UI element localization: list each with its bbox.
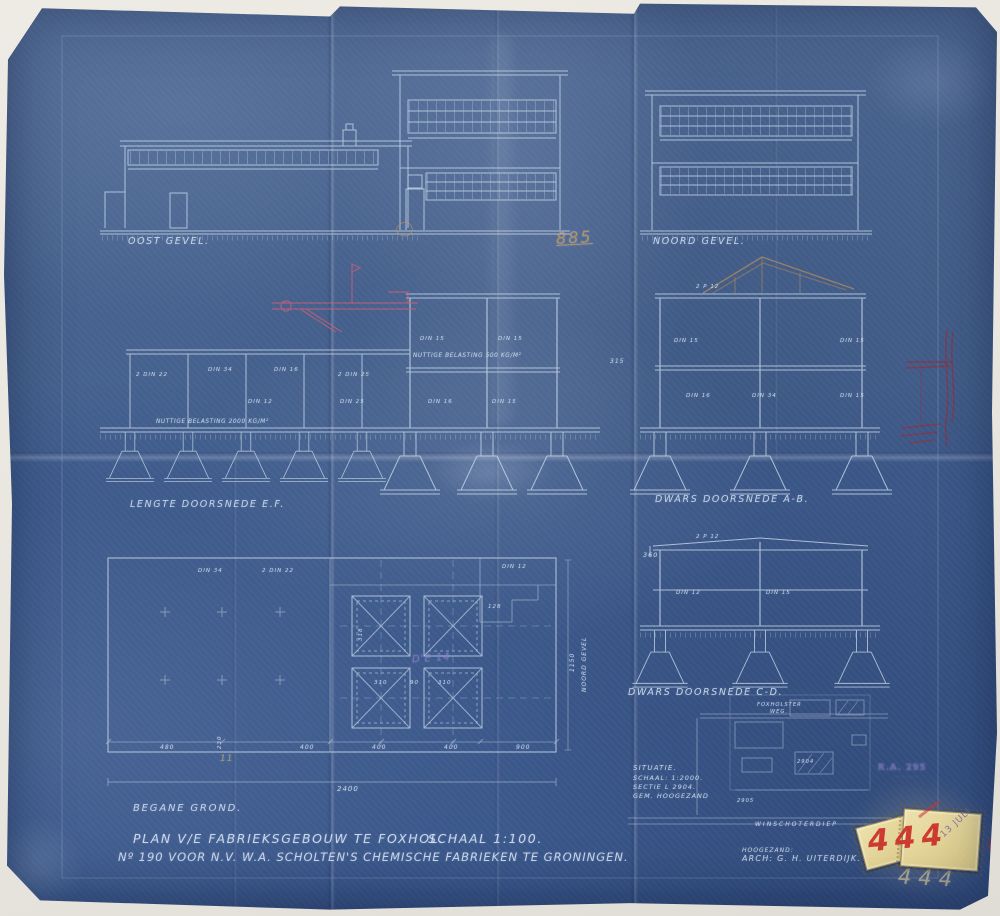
- lengte-doorsnede-drawing: [100, 294, 600, 494]
- dim-label: 400: [300, 744, 314, 751]
- middle-elevation-drawing: [392, 71, 568, 230]
- dim-label: 360: [643, 551, 658, 559]
- member-label: DIN 16: [686, 393, 711, 399]
- load-note-upper: NUTTIGE BELASTING 500 KG/M²: [413, 353, 521, 359]
- tan-handwritten-note: 11: [220, 754, 233, 764]
- plan-north-side-note: NOORD GEVEL: [581, 637, 588, 692]
- oost-gevel-label: OOST GEVEL.: [128, 236, 210, 247]
- archive-stamp-line1: R.A. 295: [878, 763, 927, 773]
- begane-grond-plan-drawing: [106, 558, 571, 786]
- dwars-ab-label: DWARS DOORSNEDE A-B.: [655, 494, 809, 505]
- noord-gevel-label: NOORD GEVEL.: [653, 236, 745, 247]
- dim-label: 128: [488, 604, 502, 610]
- blueprint-linework: [0, 0, 1000, 916]
- member-label: DIN 12: [248, 399, 273, 405]
- member-label: DIN 34: [208, 367, 233, 373]
- member-label: DIN 34: [198, 568, 223, 574]
- signature-place: HOOGEZAND:: [742, 847, 794, 854]
- member-label: DIN 15: [840, 393, 865, 399]
- dim-label: 400: [372, 744, 386, 751]
- dim-label: 318: [358, 628, 364, 642]
- dim-label: 400: [444, 744, 458, 751]
- dwars-cd-label: DWARS DOORSNEDE C-D.: [628, 687, 783, 698]
- title-line1: PLAN V/E FABRIEKSGEBOUW TE FOXHOL.: [133, 831, 445, 846]
- red-pencil-sketch: [272, 264, 418, 332]
- dim-label: 900: [516, 744, 530, 751]
- signature-architect: ARCH: G. H. UITERDIJK.: [742, 854, 861, 863]
- situatie-canal-name: WINSCHOTERDIEP: [755, 821, 838, 828]
- sepia-roof-sketch: [703, 257, 854, 293]
- red-edge-smudge: [989, 838, 997, 852]
- oost-gevel-elevation-drawing: [105, 124, 412, 228]
- member-label: DIN 12: [676, 590, 701, 596]
- sticker-number-stamp: 444: [866, 817, 949, 859]
- dim-label: 315: [610, 358, 624, 365]
- situatie-parcel-number: 2905: [737, 798, 754, 804]
- registration-sticker: 444 13 JULI: [856, 803, 988, 884]
- dim-label: 230: [217, 736, 223, 750]
- title-line1-scale: SCHAAL 1:100.: [428, 831, 543, 846]
- member-label: DIN 15: [674, 338, 699, 344]
- member-label: DIN 15: [492, 399, 517, 405]
- member-label: DIN 34: [752, 393, 777, 399]
- member-label: DIN 15: [498, 336, 523, 342]
- red-ink-scribbles: [900, 330, 954, 446]
- blueprint-sheet: OOST GEVEL. NOORD GEVEL. LENGTE DOORSNED…: [0, 0, 1000, 916]
- dim-label: 480: [160, 744, 174, 751]
- member-label: DIN 15: [420, 336, 445, 342]
- dim-label: 90: [410, 680, 419, 686]
- member-label: 2 P 12: [696, 284, 719, 290]
- situatie-scale: SCHAAL: 1:2000.: [633, 774, 703, 782]
- dim-label: 310: [438, 680, 452, 686]
- member-label: 2 DIN 22: [136, 372, 168, 378]
- situatie-site-plan-drawing: [628, 695, 892, 824]
- orange-handwritten-number: 885: [556, 227, 593, 248]
- dim-label: 310: [374, 680, 388, 686]
- begane-grond-label: BEGANE GROND.: [133, 803, 242, 814]
- member-label: 2 P 12: [696, 534, 719, 540]
- situatie-parcel-number: 2904: [797, 759, 814, 765]
- member-label: 2 DIN 25: [338, 372, 370, 378]
- situatie-gemeente: GEM. HOOGEZAND: [633, 792, 709, 800]
- elevation-ground-lines: [100, 231, 872, 238]
- dim-label: 2400: [337, 785, 359, 793]
- photograph-background: OOST GEVEL. NOORD GEVEL. LENGTE DOORSNED…: [0, 0, 1000, 916]
- member-label: DIN 15: [840, 338, 865, 344]
- lengte-doorsnede-label: LENGTE DOORSNEDE E.F.: [130, 499, 285, 510]
- member-label: 2 DIN 22: [262, 568, 294, 574]
- dim-label: 1150: [569, 653, 576, 672]
- member-label: DIN 12: [502, 564, 527, 570]
- situatie-title: SITUATIE.: [633, 764, 677, 772]
- situatie-road-name: FOXHOLSTER: [757, 702, 802, 708]
- dwars-doorsnede-cd-drawing: [632, 538, 889, 687]
- situatie-road-name: WEG.: [770, 709, 788, 715]
- member-label: DIN 16: [274, 367, 299, 373]
- load-note-lower: NUTTIGE BELASTING 2000 KG/M²: [156, 419, 269, 425]
- member-label: DIN 15: [766, 590, 791, 596]
- archive-stamp-line2: ········: [893, 773, 919, 781]
- noord-gevel-elevation-drawing: [645, 91, 866, 230]
- member-label: DIN 16: [428, 399, 453, 405]
- member-label: DIN 25: [340, 399, 365, 405]
- title-line2: Nº 190 VOOR N.V. W.A. SCHOLTEN'S CHEMISC…: [118, 850, 629, 864]
- situatie-sectie: SECTIE L 2904.: [633, 783, 696, 791]
